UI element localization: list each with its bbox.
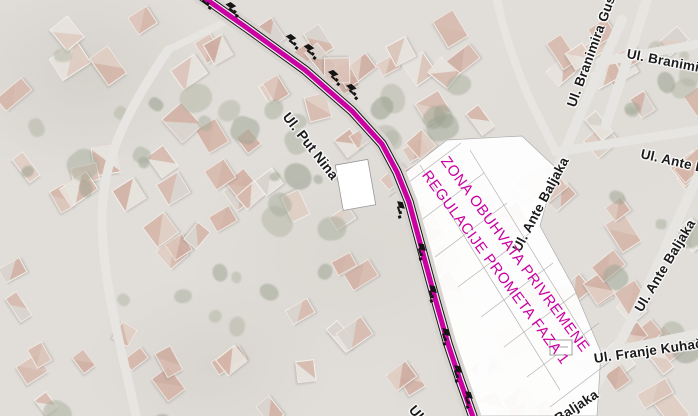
imagery-fade-overlay (0, 0, 698, 416)
map-canvas[interactable]: Ul. Put NinaUl. Branimira GušUl. Branimi… (0, 0, 698, 416)
